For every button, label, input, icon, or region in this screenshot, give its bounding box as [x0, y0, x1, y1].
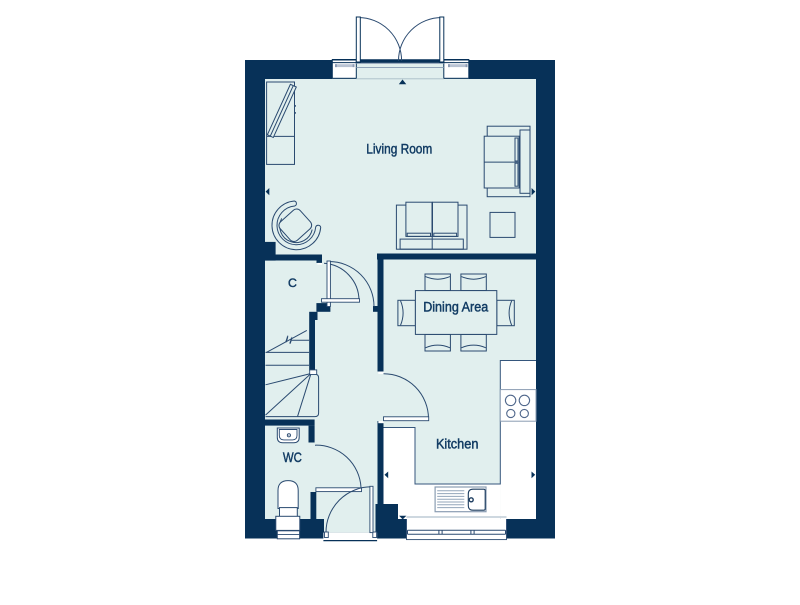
svg-text:WC: WC	[283, 449, 302, 465]
svg-text:Dining Area: Dining Area	[423, 300, 488, 315]
svg-text:Kitchen: Kitchen	[436, 436, 479, 451]
svg-text:C: C	[288, 276, 297, 290]
svg-text:Living Room: Living Room	[366, 142, 432, 157]
